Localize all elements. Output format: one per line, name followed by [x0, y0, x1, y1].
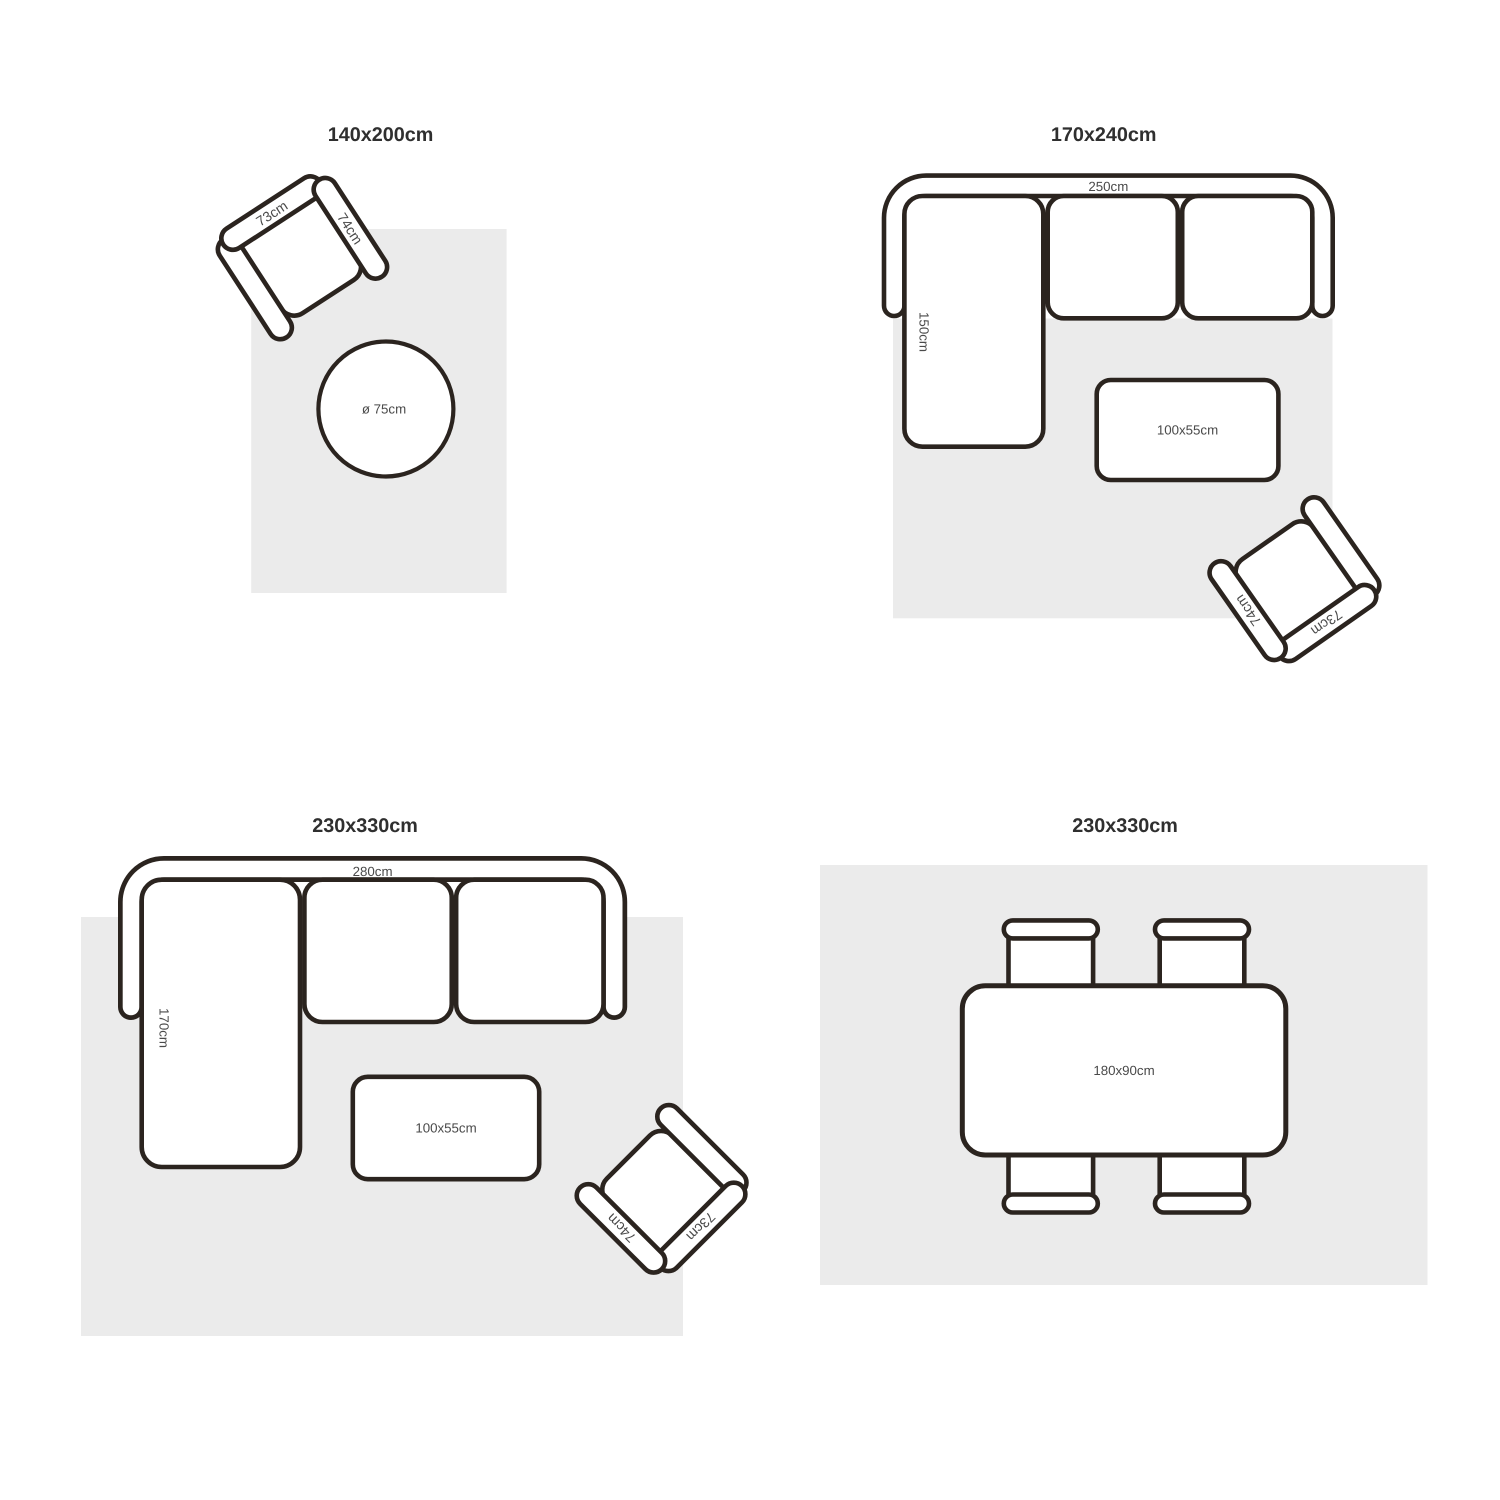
svg-text:170cm: 170cm — [156, 1008, 171, 1048]
svg-text:100x55cm: 100x55cm — [415, 1121, 476, 1136]
svg-text:ø 75cm: ø 75cm — [362, 402, 406, 417]
svg-text:100x55cm: 100x55cm — [1157, 423, 1218, 438]
svg-text:280cm: 280cm — [353, 864, 393, 879]
svg-text:230x330cm: 230x330cm — [312, 815, 418, 837]
svg-text:140x200cm: 140x200cm — [328, 124, 434, 146]
svg-text:170x240cm: 170x240cm — [1051, 124, 1157, 146]
svg-text:250cm: 250cm — [1088, 179, 1128, 194]
svg-text:230x330cm: 230x330cm — [1072, 815, 1178, 837]
svg-text:150cm: 150cm — [916, 312, 931, 352]
svg-text:180x90cm: 180x90cm — [1093, 1063, 1154, 1078]
